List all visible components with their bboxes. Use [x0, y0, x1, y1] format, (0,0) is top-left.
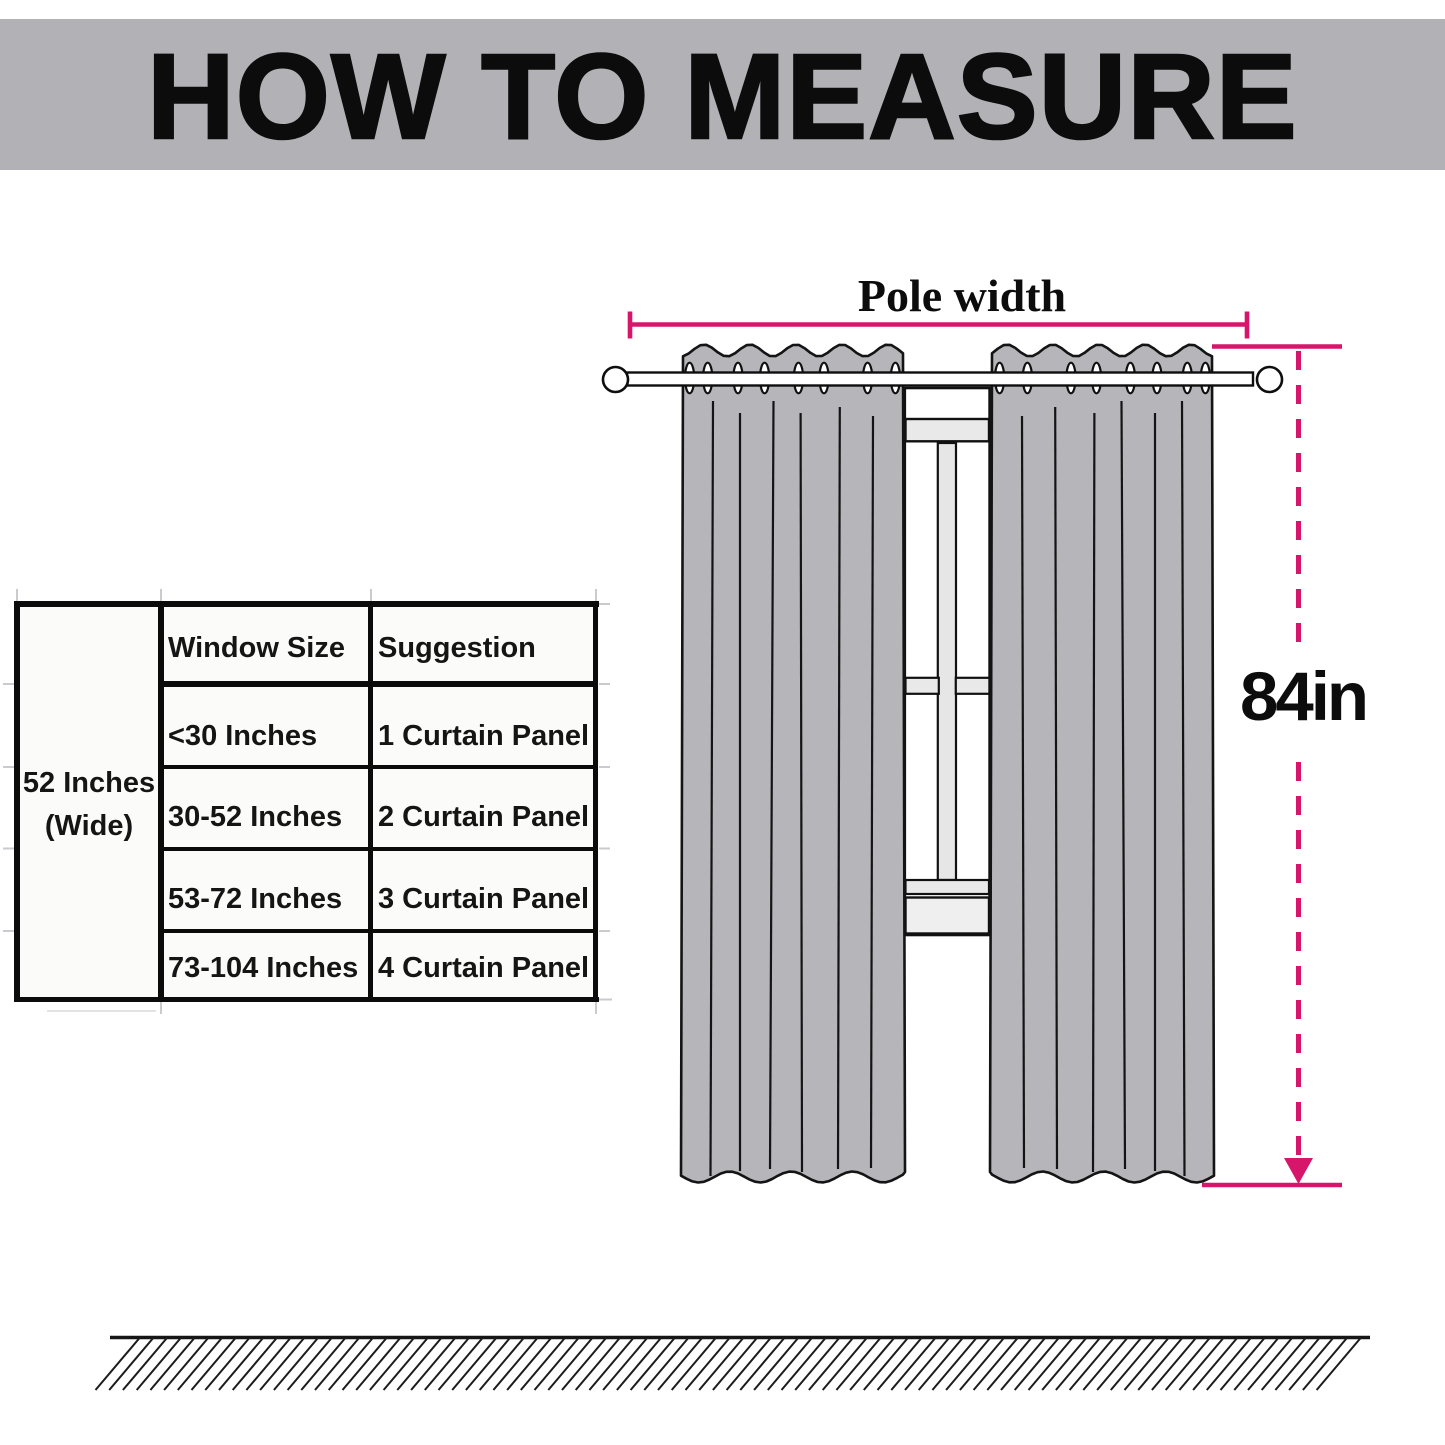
svg-text:84in: 84in [1240, 658, 1366, 735]
svg-text:Pole width: Pole width [858, 270, 1066, 321]
